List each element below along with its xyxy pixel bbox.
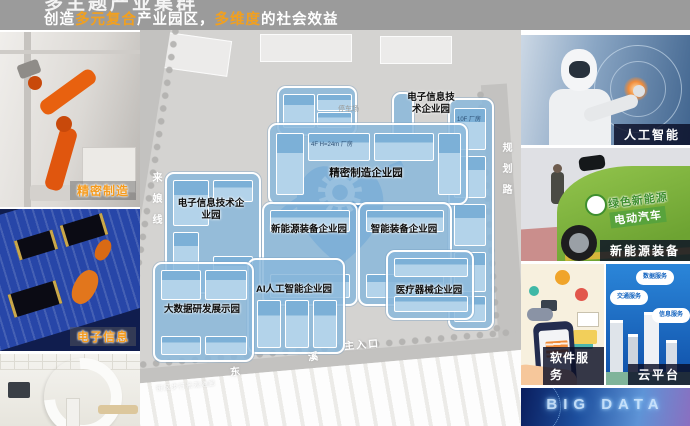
wheel-hub-graphic <box>569 233 589 253</box>
mail-icon <box>577 312 599 327</box>
header-band: 多主题产业集群 创造多元复合产业园区，多维度的社会效益 <box>0 0 690 30</box>
subtitle-seg: 产业园区， <box>137 12 215 28</box>
parking-label: 停车场 <box>338 104 359 114</box>
factory-column-graphic <box>24 32 31 207</box>
slide: 多主题产业集群 创造多元复合产业园区，多维度的社会效益 精密制造 电子信息 <box>0 0 690 426</box>
photo-label: 软件服务 <box>543 347 604 385</box>
photo-label: 精密制造 <box>70 181 136 200</box>
building-tag: 4F H=24m 厂房 <box>309 134 369 149</box>
zone-label: 电子信息技术企业园 <box>176 198 246 221</box>
patient-bed-graphic <box>98 405 138 414</box>
building-block <box>276 133 304 195</box>
robot-visor-graphic <box>569 61 590 78</box>
building-block <box>161 336 201 355</box>
road-name-south-char: 溪 <box>307 348 319 364</box>
photo-label: 人工智能 <box>614 124 690 145</box>
subtitle-highlight: 多维度 <box>215 12 262 28</box>
robot-joint-graphic <box>28 76 42 90</box>
car-decal: 绿色新能源 电动汽车 <box>607 188 671 229</box>
bigdata-title: BIG DATA <box>521 396 690 413</box>
photo-label: 新能源装备 <box>600 240 690 261</box>
building-block <box>285 300 309 348</box>
person-head-graphic <box>553 164 562 173</box>
subtitle-highlight: 多元复合 <box>75 12 137 28</box>
context-building <box>260 34 352 62</box>
subtitle-seg: 的社会效益 <box>261 12 339 28</box>
subtitle-seg: 创造 <box>44 12 75 28</box>
icon-dot-graphic <box>555 270 570 285</box>
cloud-tag: 交通服务 <box>610 290 648 305</box>
zone-label: 精密制造企业园 <box>286 168 446 180</box>
building-block <box>313 300 337 348</box>
cloud-tag: 数据服务 <box>636 270 674 285</box>
site-plan: 10F 厂房 4F H=24m 厂房 <box>140 30 521 426</box>
zone-label: 智能装备企业园 <box>362 224 446 236</box>
zone-block <box>247 258 345 354</box>
zone-block: 4F H=24m 厂房 <box>268 123 468 205</box>
photo-cloud-platform: 交通服务 数据服务 信息服务 云平台 <box>606 264 690 385</box>
photo-electronics-board: 电子信息 <box>0 209 140 351</box>
road-name-south-char: 东 <box>229 363 241 379</box>
context-building <box>380 36 452 64</box>
robot-arm-upper-graphic <box>37 67 98 118</box>
machine-column-graphic <box>66 398 80 426</box>
building-block <box>257 300 281 348</box>
building-tag: 10F 厂房 <box>455 109 485 124</box>
zone-label: 电子信息技术企业园 <box>404 92 458 115</box>
photo-precision-manufacturing: 精密制造 <box>0 32 140 207</box>
robot-joint-graphic <box>56 116 72 132</box>
cloud-tag: 信息服务 <box>652 308 690 323</box>
photo-label: 电子信息 <box>70 327 136 346</box>
monitor-graphic <box>8 382 30 398</box>
photo-ai-robot: 人工智能 <box>521 35 690 145</box>
building-block <box>394 296 468 312</box>
photo-bigdata: BIG DATA <box>521 388 690 426</box>
building-block: 4F H=24m 厂房 <box>308 133 370 161</box>
entrance-label: 主入口 <box>343 334 380 352</box>
road-name-east: 规划路 <box>498 142 513 282</box>
road-name-west: 来娘线 <box>148 172 163 282</box>
building-block <box>205 270 247 300</box>
photo-software-service: 软件服务 <box>521 264 604 385</box>
building-block <box>205 336 247 355</box>
iso-building-graphic <box>610 320 623 373</box>
cards-stack-graphic <box>573 330 597 344</box>
zone-label: 新能源装备企业园 <box>264 224 354 236</box>
page-subtitle: 创造多元复合产业园区，多维度的社会效益 <box>44 8 339 29</box>
building-block <box>394 258 468 277</box>
building-block <box>374 133 434 161</box>
building-block <box>454 204 486 246</box>
icon-dot-graphic <box>575 288 588 301</box>
icon-dot-graphic <box>529 286 539 296</box>
factory-rail-graphic <box>0 50 140 54</box>
photo-medical-room <box>0 354 140 426</box>
cloud-icon <box>527 308 553 321</box>
photo-label: 云平台 <box>628 364 690 385</box>
zone-label: 大数据研发展示园 <box>156 304 248 316</box>
zone-label: 医疗器械企业园 <box>388 285 470 297</box>
photo-newenergy-car: 绿色新能源 电动汽车 新能源装备 <box>521 148 690 261</box>
car-logo-graphic <box>585 194 607 216</box>
building-block <box>438 133 461 195</box>
building-block <box>161 270 201 300</box>
robot-hand-graphic <box>633 85 645 97</box>
zone-label: AI人工智能企业园 <box>246 284 342 296</box>
